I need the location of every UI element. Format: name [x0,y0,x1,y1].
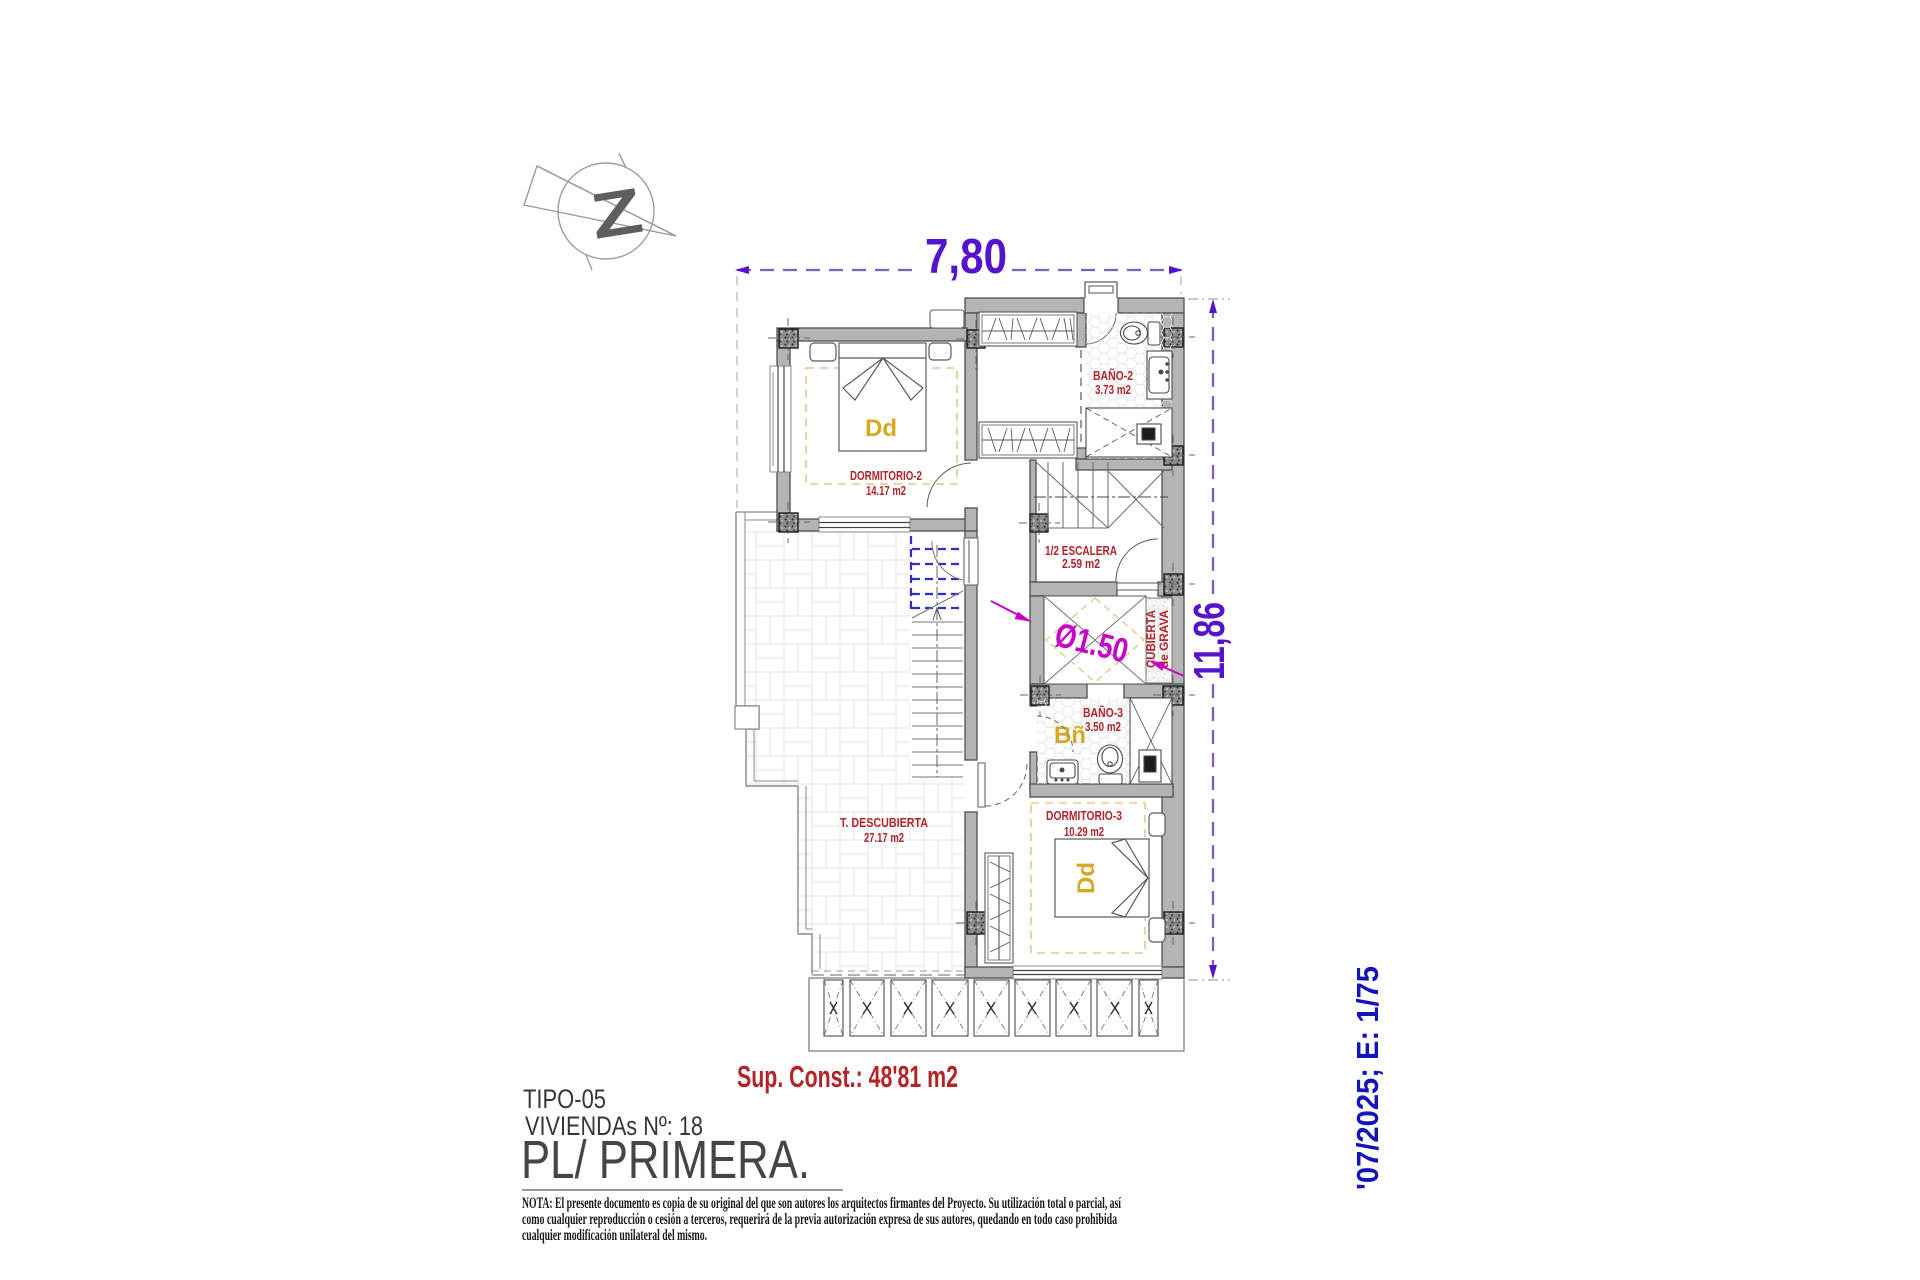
svg-text:Dd: Dd [865,415,897,442]
svg-text:3.73 m2: 3.73 m2 [1095,382,1131,397]
svg-text:DORMITORIO-3: DORMITORIO-3 [1046,808,1122,823]
svg-text:11,86: 11,86 [1185,602,1234,680]
svg-text:TIPO-05: TIPO-05 [523,1084,606,1114]
svg-text:'07/2025; E: 1/75: '07/2025; E: 1/75 [1350,966,1385,1190]
svg-text:Bñ: Bñ [1054,722,1086,749]
svg-text:Z: Z [586,174,647,253]
svg-text:de GRAVA: de GRAVA [1157,610,1171,668]
svg-text:como cualquier reproducción o: como cualquier reproducción o cesión a t… [522,1211,1117,1228]
svg-text:2.59 m2: 2.59 m2 [1062,556,1100,571]
svg-text:NOTA: El presente documento es: NOTA: El presente documento es copia de … [522,1195,1121,1212]
svg-text:10.29 m2: 10.29 m2 [1064,824,1104,839]
svg-text:Sup. Const.: 48'81 m2: Sup. Const.: 48'81 m2 [737,1059,958,1094]
svg-text:Dd: Dd [1073,862,1100,894]
svg-text:27.17 m2: 27.17 m2 [864,830,904,845]
svg-text:DORMITORIO-2: DORMITORIO-2 [850,468,922,483]
svg-text:7,80: 7,80 [925,230,1007,284]
svg-text:BAÑO-2: BAÑO-2 [1093,368,1133,383]
svg-text:T. DESCUBIERTA: T. DESCUBIERTA [840,815,929,830]
svg-text:3.50 m2: 3.50 m2 [1085,719,1121,734]
svg-text:CUBIERTA: CUBIERTA [1144,610,1158,668]
svg-text:cualquier modificación unilate: cualquier modificación unilateral del mi… [522,1227,707,1244]
svg-text:BAÑO-3: BAÑO-3 [1083,705,1123,720]
svg-text:14.17 m2: 14.17 m2 [866,483,906,498]
svg-text:PL/ PRIMERA.: PL/ PRIMERA. [521,1130,810,1190]
